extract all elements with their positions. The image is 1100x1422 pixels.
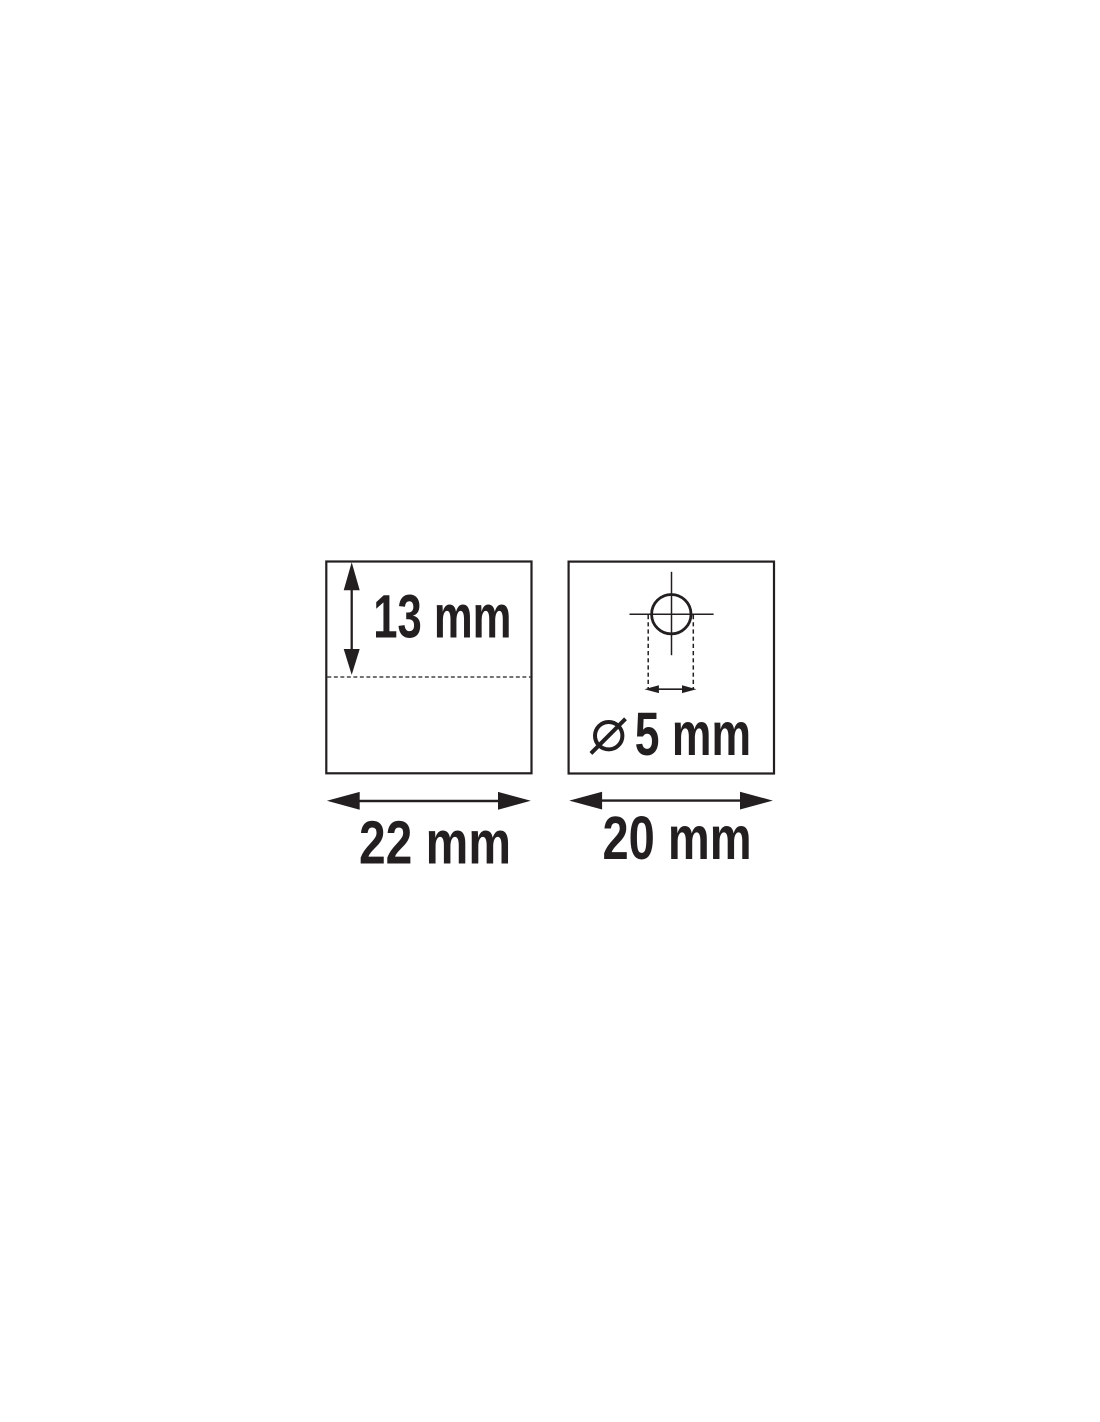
svg-text:13 mm: 13 mm — [373, 583, 511, 652]
svg-text:20 mm: 20 mm — [603, 804, 752, 873]
svg-text:5 mm: 5 mm — [635, 700, 751, 769]
svg-text:22 mm: 22 mm — [359, 808, 511, 877]
